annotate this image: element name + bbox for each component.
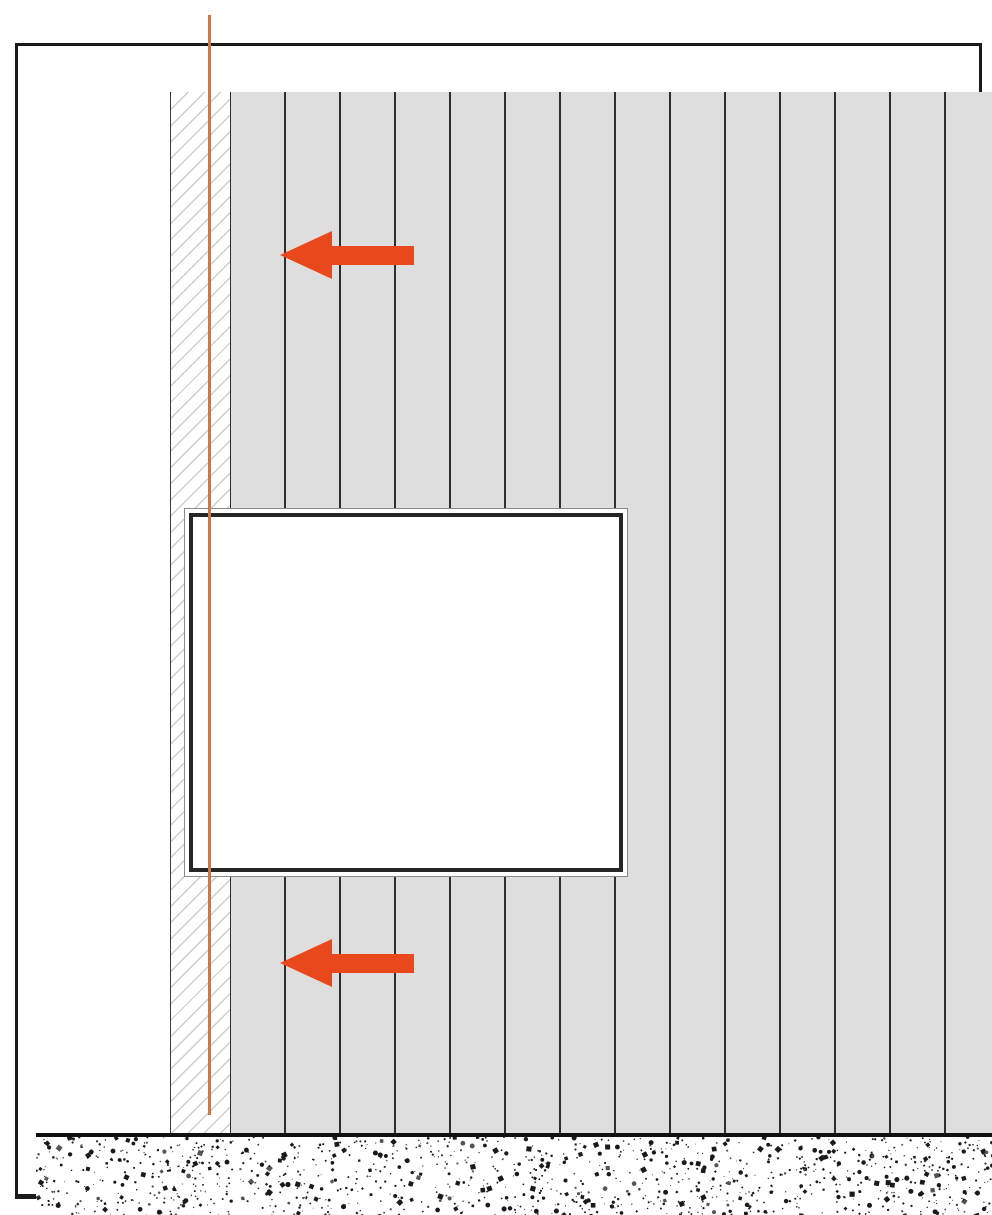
floor-band <box>36 1133 992 1215</box>
arrow-left-icon <box>280 230 414 280</box>
wallpapering-diagram <box>0 0 992 1215</box>
window-frame <box>189 513 623 872</box>
panel-seam <box>834 92 836 1133</box>
panel-seam <box>779 92 781 1133</box>
panel-seam <box>944 92 946 1133</box>
bare-wall-strip <box>36 92 170 1133</box>
window <box>184 508 628 877</box>
floor-speckle-texture <box>36 1137 992 1215</box>
plumb-line <box>208 15 211 1115</box>
panel-seam <box>669 92 671 1133</box>
panel-seam <box>724 92 726 1133</box>
wall-elevation-frame <box>15 43 982 1199</box>
arrow-left-icon <box>280 938 414 988</box>
panel-seam <box>889 92 891 1133</box>
